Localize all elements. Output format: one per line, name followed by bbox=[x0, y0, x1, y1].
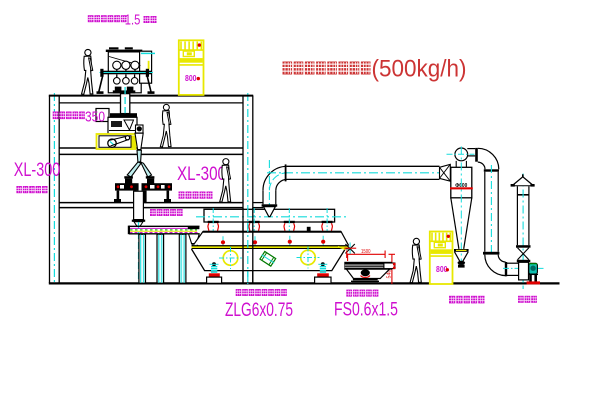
svg-text:XL-300: XL-300 bbox=[14, 160, 61, 181]
svg-text:1.5: 1.5 bbox=[125, 12, 141, 29]
svg-text:FS0.6x1.5: FS0.6x1.5 bbox=[334, 299, 398, 321]
svg-text:350: 350 bbox=[85, 110, 105, 126]
svg-text:800: 800 bbox=[185, 74, 197, 83]
svg-text:XL-300: XL-300 bbox=[177, 164, 226, 185]
svg-text:1500: 1500 bbox=[361, 249, 371, 255]
svg-text:ZLG6x0.75: ZLG6x0.75 bbox=[225, 299, 293, 321]
svg-text:(500kg/h): (500kg/h) bbox=[372, 56, 467, 83]
